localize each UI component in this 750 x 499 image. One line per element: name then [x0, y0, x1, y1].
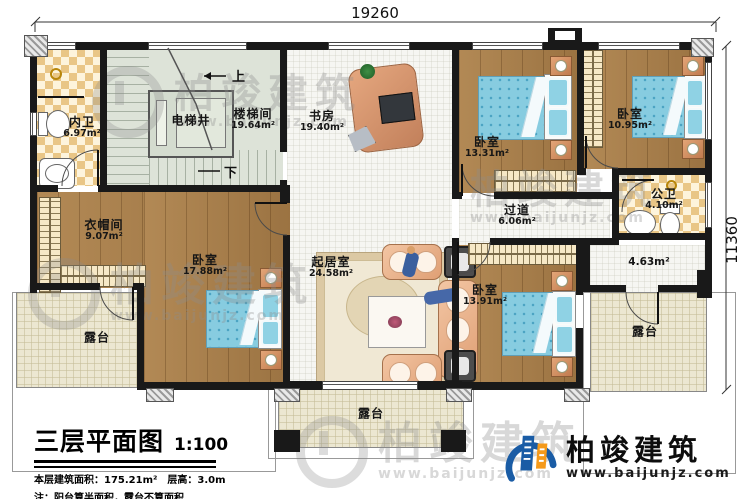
terrace-right [590, 292, 707, 392]
bed-pillow [555, 295, 574, 324]
plan-title: 三层平面图 [34, 422, 164, 458]
room-name: 书房 [300, 110, 344, 123]
bed-pillow [547, 108, 569, 137]
room-label-hallway: 过道 6.06m² [498, 204, 536, 228]
room-label-bedroom-bottom: 卧室 13.91m² [463, 284, 507, 308]
room-label-study: 书房 19.40m² [300, 110, 344, 134]
room-area: 13.31m² [465, 149, 509, 160]
room-label-stairwell: 楼梯间 19.64m² [231, 108, 275, 132]
bed-pillow [686, 108, 704, 136]
room-name: 露台 [632, 325, 658, 338]
terrace-left [16, 292, 139, 388]
window [705, 182, 712, 228]
closet-between-bedrooms [583, 50, 603, 148]
nightstand [260, 268, 282, 288]
terrace-column [441, 430, 466, 452]
room-name: 卧室 [463, 284, 507, 297]
nightstand [550, 56, 572, 76]
wall [612, 168, 619, 245]
wall-corner-block [697, 270, 712, 298]
room-name: 电梯井 [171, 114, 210, 127]
dimension-width: 19260 [340, 4, 410, 22]
room-label-public-bath: 公卫 4.10m² [645, 188, 683, 212]
plan-measure-note: 注：阳台算半面积，露台不算面积 [34, 489, 244, 499]
room-label-inner-bath: 内卫 6.97m² [63, 116, 101, 140]
room-label-terrace-right: 露台 [632, 325, 658, 338]
title-underline [34, 460, 216, 468]
corner-pier [24, 35, 48, 57]
nightstand [682, 139, 704, 159]
room-area: 19.40m² [300, 123, 344, 134]
towel-bar [38, 96, 84, 98]
room-label-terrace-bottom: 露台 [358, 407, 384, 420]
room-label-terrace-left: 露台 [84, 331, 110, 344]
wall [576, 328, 583, 389]
room-label-cloakroom: 衣帽间 9.07m² [84, 219, 123, 243]
wall [30, 283, 100, 290]
floor-plan-canvas: 19260 11360 内卫 6.97m² 电梯井 楼梯间 19.64m² 书房… [0, 0, 750, 499]
room-name: 卧室 [608, 108, 652, 121]
room-label-bedroom-right: 卧室 10.95m² [608, 108, 652, 132]
person-head [407, 246, 415, 254]
nightstand [550, 140, 572, 160]
room-label-bedroom-top: 卧室 13.31m² [465, 136, 509, 160]
elevator-rail [156, 100, 167, 146]
room-name: 卧室 [465, 136, 509, 149]
wall [283, 235, 290, 383]
sink-basin [45, 164, 69, 183]
room-name: 卧室 [183, 254, 227, 267]
bed-pillow [547, 78, 569, 107]
closet-cloakroom-left [39, 197, 61, 293]
closet-bedroom-top [494, 170, 576, 192]
wall [283, 185, 290, 203]
wall [577, 42, 584, 175]
room-name: 露台 [84, 331, 110, 344]
nightstand [260, 350, 282, 370]
bed-pillow [686, 79, 704, 107]
side-table-bottom [444, 350, 476, 382]
wall-left [30, 42, 37, 293]
stair-down-label: 下 [224, 162, 237, 181]
room-area: 6.97m² [63, 129, 101, 140]
chimney-inner [555, 31, 575, 40]
wall [452, 42, 459, 199]
pier [446, 388, 472, 402]
room-name: 衣帽间 [84, 219, 123, 232]
room-area: 24.58m² [309, 269, 353, 280]
room-label-bedroom-left: 卧室 17.88m² [183, 254, 227, 278]
brand-logo: 柏竣建筑 www.baijunjz.com [500, 430, 731, 486]
room-name: 楼梯间 [231, 108, 275, 121]
wall [452, 238, 459, 389]
stair-up-label: 上 [232, 66, 245, 85]
nightstand [551, 357, 573, 377]
pier [146, 388, 174, 402]
corner-pier [691, 38, 714, 57]
room-area: 4.10m² [645, 201, 683, 212]
wall-hook [50, 68, 62, 80]
wall [490, 238, 619, 245]
pier [564, 388, 590, 402]
room-label-elevator: 电梯井 [171, 114, 210, 127]
dimension-height: 11360 [723, 208, 741, 272]
pier [274, 388, 300, 402]
title-block: 三层平面图 1:100 本层建筑面积：175.21m² 层高：3.0m 注：阳台… [34, 422, 244, 499]
room-name: 公卫 [645, 188, 683, 201]
window [598, 42, 680, 50]
dimension-height-value: 11360 [723, 216, 741, 264]
room-name: 内卫 [63, 116, 101, 129]
room-area: 19.64m² [231, 121, 275, 132]
window [328, 42, 410, 50]
wall [98, 185, 283, 192]
room-name: 起居室 [309, 256, 353, 269]
room-area: 13.91m² [463, 297, 507, 308]
terrace-column [274, 430, 300, 452]
plan-area-note: 本层建筑面积：175.21m² 层高：3.0m [34, 471, 244, 486]
room-area: 4.63m² [628, 257, 669, 269]
brand-name: 柏竣建筑 [566, 435, 731, 465]
room-label-living: 起居室 24.58m² [309, 256, 353, 280]
room-name: 露台 [358, 407, 384, 420]
stair-treads-upper [103, 48, 149, 188]
desk-plant [360, 64, 375, 79]
wall [280, 42, 287, 152]
bed-pillow [261, 293, 280, 319]
wall [583, 240, 590, 292]
bed-pillow [261, 320, 280, 346]
window [30, 112, 37, 136]
nightstand [551, 271, 573, 291]
room-area: 9.07m² [84, 232, 123, 243]
wall [576, 238, 583, 295]
room-name: 过道 [498, 204, 536, 217]
brand-website: www.baijunjz.com [566, 466, 731, 481]
wall [612, 233, 712, 240]
window [705, 62, 712, 140]
table-flowers [388, 316, 402, 328]
computer-monitor [378, 92, 415, 124]
terrace-door-window [322, 381, 418, 390]
nightstand [682, 56, 704, 76]
wall [137, 283, 144, 389]
room-area: 17.88m² [183, 267, 227, 278]
plan-scale: 1:100 [174, 435, 228, 455]
window [472, 42, 543, 50]
wall [100, 48, 107, 188]
wall [618, 168, 712, 175]
brand-logo-icon [500, 430, 558, 486]
room-area: 10.95m² [608, 121, 652, 132]
room-label-small-area: 4.63m² [628, 257, 669, 269]
window [148, 42, 247, 50]
room-area: 6.06m² [498, 217, 536, 228]
wall [494, 192, 617, 199]
bed-pillow [555, 325, 574, 354]
dimension-width-value: 19260 [351, 4, 399, 22]
closet-bedroom-bottom [468, 243, 578, 265]
